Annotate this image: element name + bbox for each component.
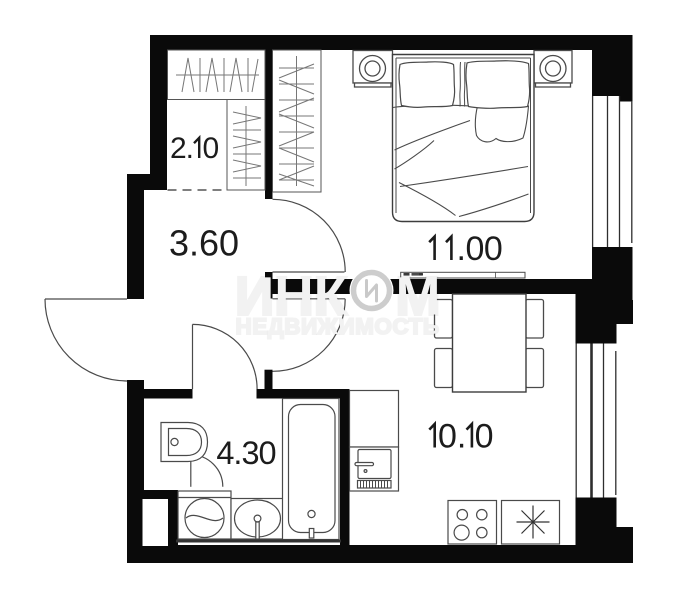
svg-text:.00: .00 (457, 230, 503, 268)
svg-text:0: 0 (203, 132, 220, 165)
svg-text:0.: 0. (438, 418, 466, 456)
svg-text:0: 0 (475, 418, 494, 456)
svg-text:НЕДВИЖИМОСТЬ: НЕДВИЖИМОСТЬ (235, 314, 439, 339)
svg-text:4.30: 4.30 (216, 435, 275, 471)
svg-text:3.60: 3.60 (169, 223, 239, 264)
svg-text:2.: 2. (170, 132, 193, 165)
